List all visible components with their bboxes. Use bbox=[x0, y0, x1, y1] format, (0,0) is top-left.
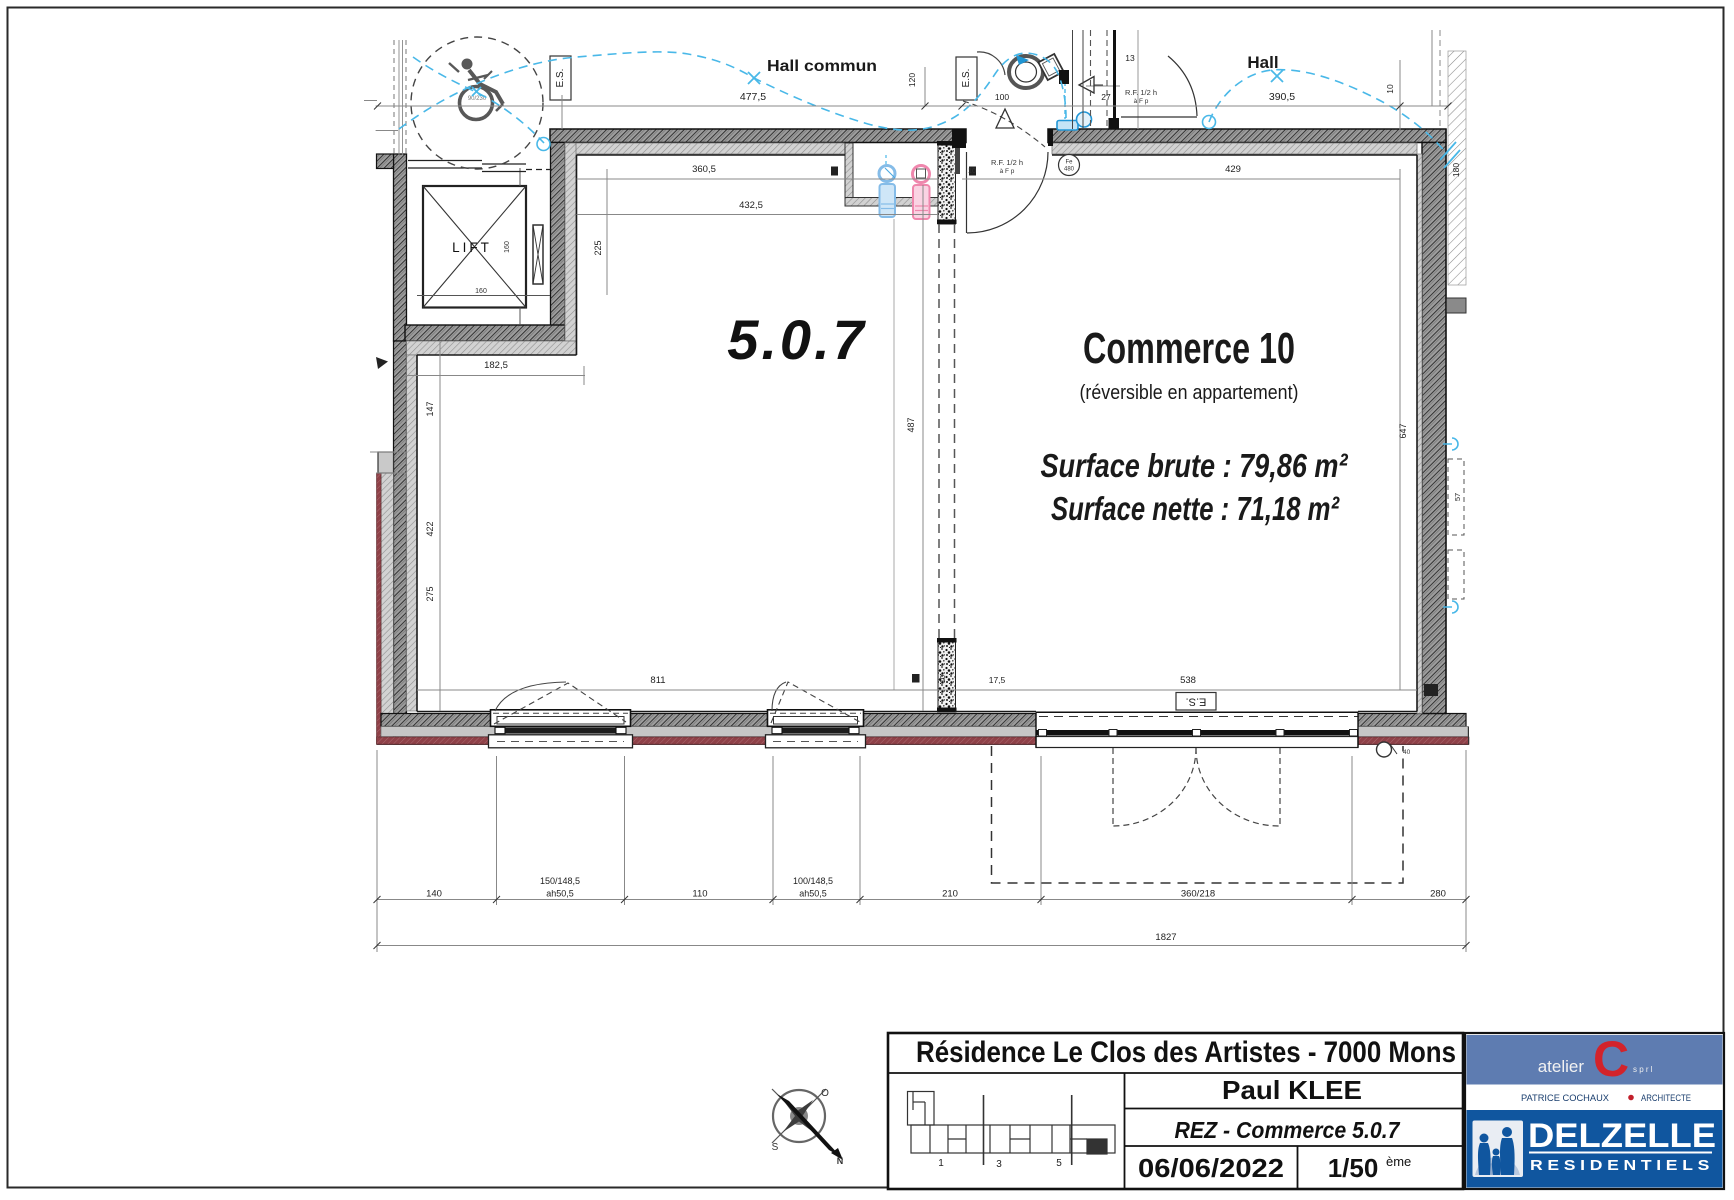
svg-text:150/148,5: 150/148,5 bbox=[540, 876, 580, 886]
svg-text:10: 10 bbox=[938, 675, 947, 683]
svg-text:275: 275 bbox=[425, 586, 435, 601]
svg-text:O: O bbox=[821, 1088, 829, 1099]
svg-text:360,5: 360,5 bbox=[692, 164, 716, 175]
svg-text:120: 120 bbox=[907, 73, 917, 87]
svg-text:à F p: à F p bbox=[1134, 98, 1149, 105]
svg-text:1/50: 1/50 bbox=[1328, 1153, 1379, 1183]
svg-text:432,5: 432,5 bbox=[739, 200, 763, 211]
svg-text:ah50,5: ah50,5 bbox=[799, 889, 827, 899]
svg-text:10: 10 bbox=[1385, 84, 1395, 94]
svg-text:100/148,5: 100/148,5 bbox=[793, 876, 833, 886]
svg-text:280: 280 bbox=[1430, 889, 1446, 900]
svg-text:182,5: 182,5 bbox=[484, 360, 508, 371]
svg-text:40: 40 bbox=[1403, 749, 1411, 756]
svg-text:210: 210 bbox=[942, 889, 958, 900]
svg-text:147: 147 bbox=[425, 401, 435, 416]
svg-text:100: 100 bbox=[995, 92, 1009, 102]
svg-text:Commerce 10: Commerce 10 bbox=[1083, 324, 1295, 373]
svg-text:480: 480 bbox=[1064, 167, 1075, 173]
svg-text:s p r l: s p r l bbox=[1633, 1065, 1653, 1074]
svg-text:160: 160 bbox=[475, 288, 487, 295]
svg-text:429: 429 bbox=[1225, 164, 1241, 175]
svg-text:5.0.7: 5.0.7 bbox=[727, 308, 867, 371]
svg-text:C: C bbox=[1593, 1031, 1629, 1087]
svg-text:811: 811 bbox=[650, 675, 665, 686]
svg-text:5: 5 bbox=[1056, 1158, 1062, 1169]
svg-text:160: 160 bbox=[504, 241, 511, 253]
svg-text:17,5: 17,5 bbox=[989, 675, 1006, 685]
svg-text:DELZELLE: DELZELLE bbox=[1528, 1117, 1716, 1155]
svg-text:140: 140 bbox=[426, 889, 442, 900]
svg-text:atelier: atelier bbox=[1538, 1057, 1585, 1076]
svg-text:(réversible en appartement): (réversible en appartement) bbox=[1080, 382, 1299, 404]
svg-text:S: S bbox=[772, 1142, 779, 1153]
svg-text:1: 1 bbox=[938, 1158, 944, 1169]
svg-text:Résidence Le Clos des Artistes: Résidence Le Clos des Artistes - 7000 Mo… bbox=[916, 1036, 1456, 1069]
svg-text:E.S.: E.S. bbox=[961, 69, 972, 88]
svg-text:E.S.: E.S. bbox=[1186, 696, 1207, 708]
svg-text:ah50,5: ah50,5 bbox=[546, 889, 574, 899]
svg-text:180: 180 bbox=[1451, 163, 1461, 177]
svg-text:Fe: Fe bbox=[1065, 160, 1073, 166]
svg-text:3: 3 bbox=[996, 1159, 1002, 1170]
svg-text:1827: 1827 bbox=[1155, 932, 1176, 943]
svg-text:538: 538 bbox=[1180, 675, 1196, 686]
svg-text:225: 225 bbox=[593, 240, 603, 255]
svg-text:647: 647 bbox=[1398, 423, 1408, 438]
svg-text:PATRICE COCHAUX: PATRICE COCHAUX bbox=[1521, 1093, 1609, 1103]
svg-text:REZ - Commerce 5.0.7: REZ - Commerce 5.0.7 bbox=[1175, 1117, 1401, 1143]
svg-text:RESIDENTIELS: RESIDENTIELS bbox=[1530, 1157, 1714, 1174]
svg-text:422: 422 bbox=[425, 521, 435, 536]
svg-text:LIFT: LIFT bbox=[452, 240, 492, 255]
svg-text:ème: ème bbox=[1386, 1154, 1411, 1169]
svg-text:R.F. 1/2 h: R.F. 1/2 h bbox=[991, 158, 1023, 167]
svg-text:Paul KLEE: Paul KLEE bbox=[1222, 1075, 1362, 1105]
svg-text:N: N bbox=[837, 1156, 844, 1166]
svg-text:27: 27 bbox=[1101, 92, 1111, 102]
svg-text:390,5: 390,5 bbox=[1269, 91, 1295, 103]
svg-text:06/06/2022: 06/06/2022 bbox=[1138, 1153, 1284, 1183]
svg-text:Hall: Hall bbox=[1247, 53, 1278, 72]
svg-text:13: 13 bbox=[1125, 53, 1135, 63]
svg-text:Surface nette : 71,18 m²: Surface nette : 71,18 m² bbox=[1051, 490, 1340, 527]
svg-text:487: 487 bbox=[906, 417, 916, 432]
svg-text:R.F. 1/2 h: R.F. 1/2 h bbox=[1125, 88, 1157, 97]
svg-text:Surface brute : 79,86 m²: Surface brute : 79,86 m² bbox=[1041, 447, 1349, 484]
svg-text:57: 57 bbox=[1453, 493, 1462, 501]
svg-text:110: 110 bbox=[692, 889, 707, 900]
svg-text:E.S.: E.S. bbox=[555, 69, 566, 88]
svg-text:360/218: 360/218 bbox=[1181, 889, 1215, 900]
svg-text:477,5: 477,5 bbox=[740, 91, 766, 103]
svg-text:Hall commun: Hall commun bbox=[767, 58, 877, 75]
svg-text:10: 10 bbox=[968, 166, 976, 175]
svg-text:ARCHITECTE: ARCHITECTE bbox=[1641, 1093, 1691, 1103]
svg-text:à F p: à F p bbox=[1000, 168, 1015, 175]
